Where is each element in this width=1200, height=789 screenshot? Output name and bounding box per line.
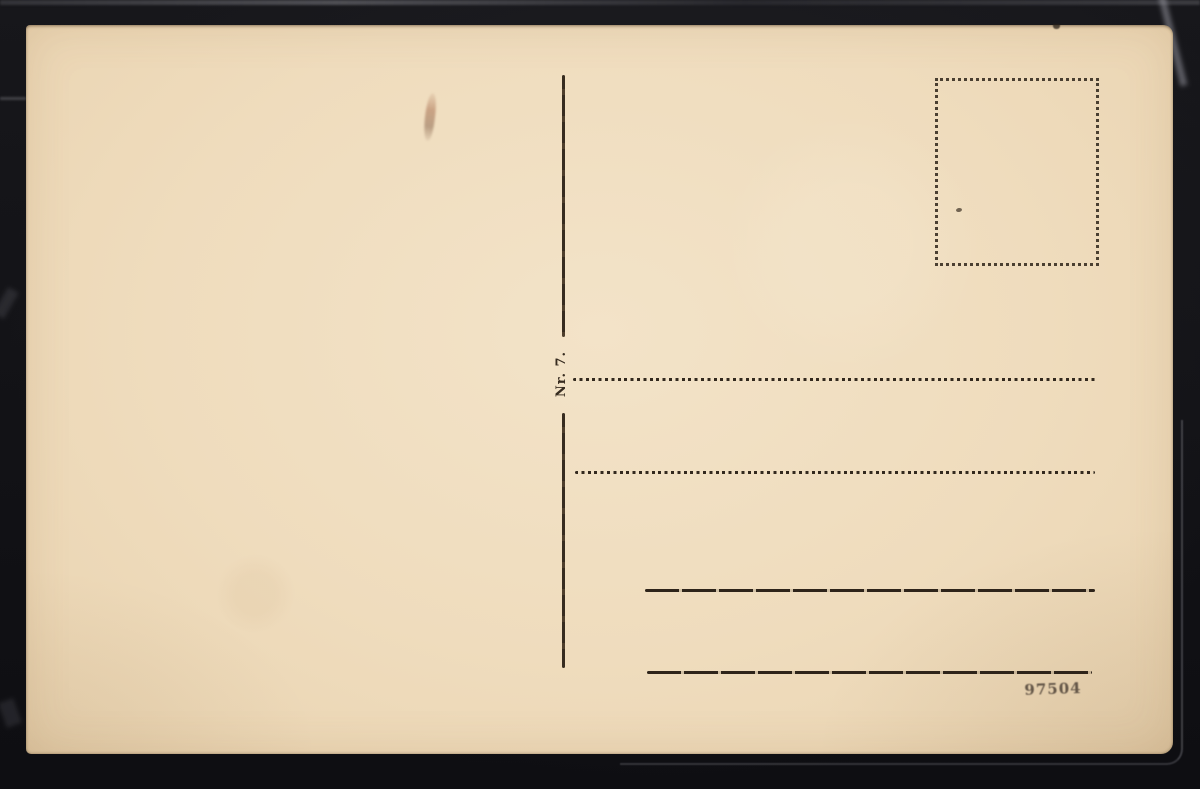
scan-mark [0,97,26,100]
edge-nick [1053,24,1060,29]
stamp-box [935,78,1099,266]
address-line-1 [573,378,1097,381]
surface-edge-streak [0,0,1200,5]
scan-mark [0,698,22,728]
address-line-2 [575,471,1095,474]
paper-stain [422,93,438,142]
divider-line-upper [562,75,565,337]
divider-line-lower [562,413,565,668]
serial-number: 97504 [1011,679,1096,700]
address-line-3 [645,589,1095,592]
series-number-label: Nr. 7. [554,346,570,402]
scan-mark [0,287,19,319]
address-line-4 [647,671,1092,674]
photo-backdrop: Nr. 7. 97504 [0,0,1200,789]
postcard-back: Nr. 7. 97504 [26,25,1173,754]
